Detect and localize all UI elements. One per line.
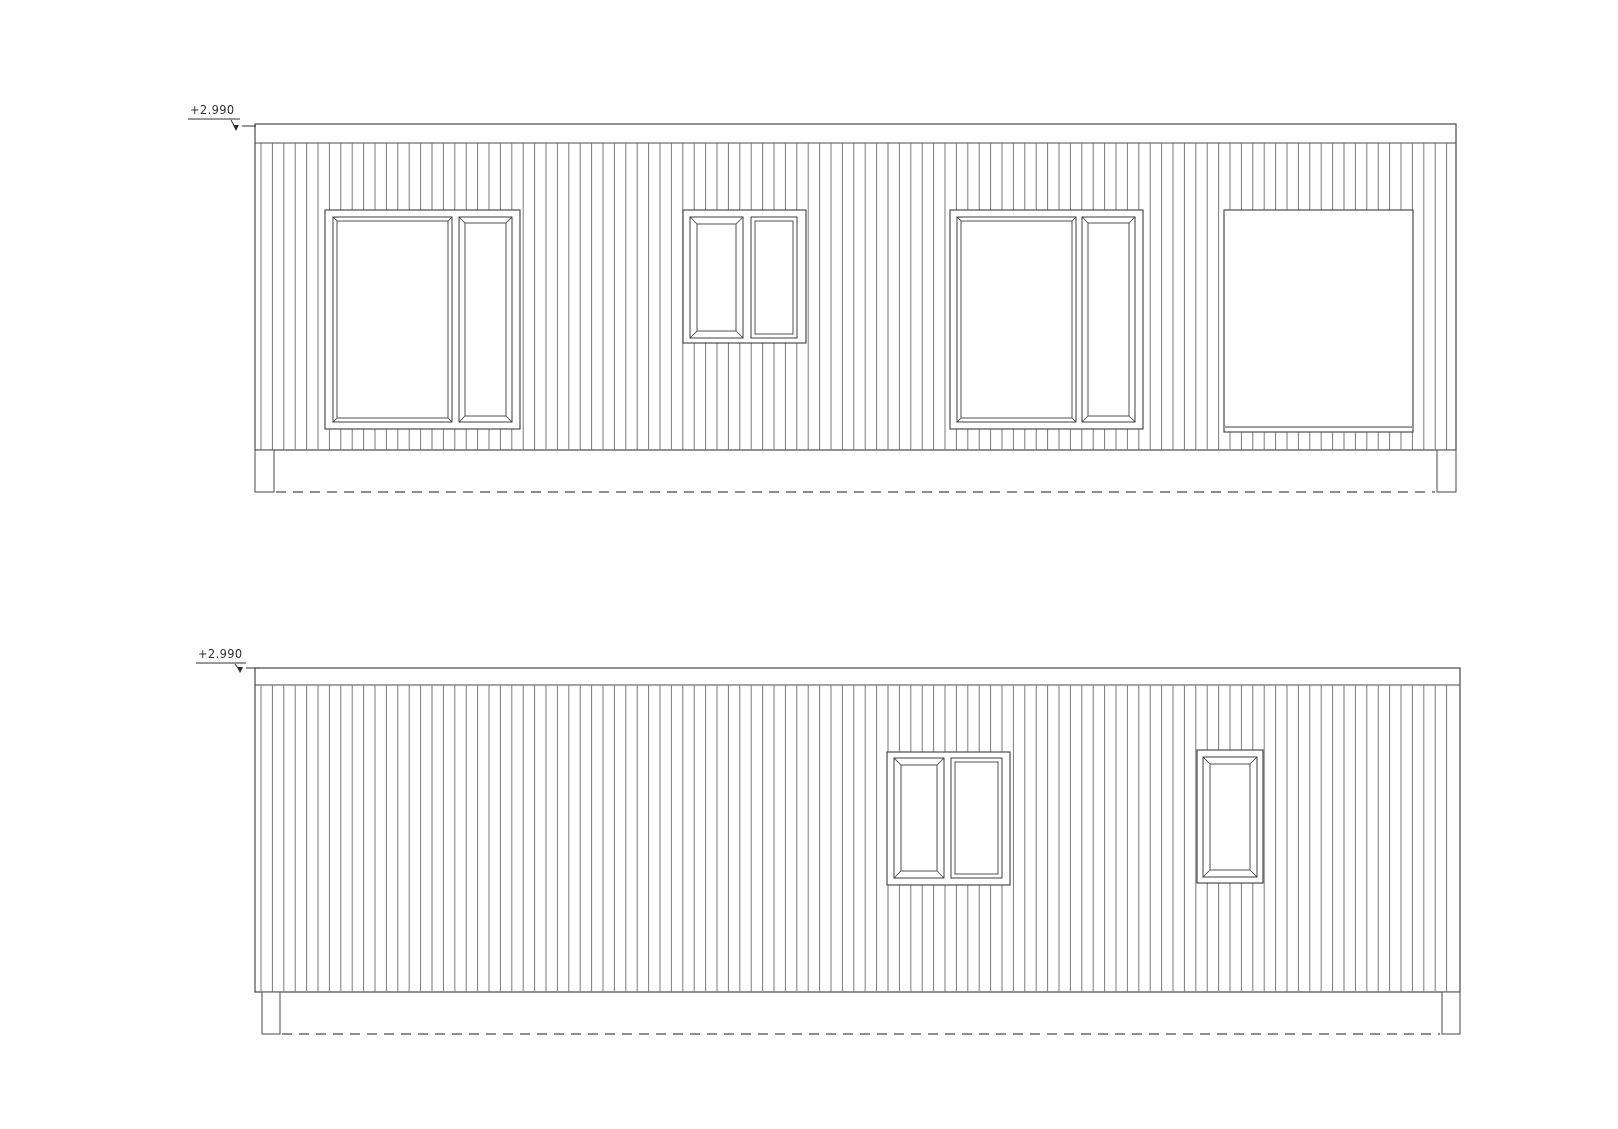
elevation-drawing-sheet: +2.990 +2.990 — [0, 0, 1618, 1129]
elevation-bottom — [196, 663, 1460, 1034]
elevation-top — [188, 119, 1456, 492]
level-marker-label-bottom: +2.990 — [198, 648, 242, 661]
level-marker-label-top: +2.990 — [190, 104, 234, 117]
drawing-canvas — [0, 0, 1618, 1129]
